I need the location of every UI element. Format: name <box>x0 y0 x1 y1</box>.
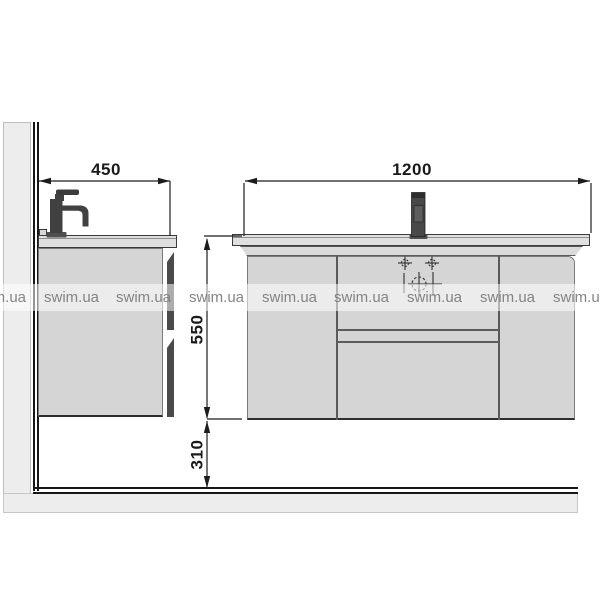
dimension-450-label: 450 <box>80 161 132 178</box>
faucet-front-icon <box>410 193 428 240</box>
countertop-edge-line <box>39 238 176 239</box>
countertop-edge-line <box>233 237 589 238</box>
drawer-gap-line-top <box>338 329 498 331</box>
front-countertop <box>232 234 590 246</box>
door-divider-right <box>498 256 500 420</box>
watermark-text: swim.ua <box>116 289 171 306</box>
front-countertop-apron <box>240 246 583 256</box>
side-countertop <box>38 235 177 248</box>
door-divider-left <box>336 256 338 420</box>
front-cabinet-body <box>247 256 575 420</box>
dimension-450-line <box>39 178 170 236</box>
watermark-text: swim.ua <box>189 289 244 306</box>
watermark-text: swim.ua <box>262 289 317 306</box>
watermark-band: swim.ua swim.ua swim.ua swim.ua swim.ua … <box>0 284 600 311</box>
watermark-text: swim.ua <box>480 289 535 306</box>
faucet-side-icon <box>47 190 89 238</box>
watermark-text: swim.ua <box>407 289 462 306</box>
floor-band <box>3 493 578 513</box>
watermark-text: swim.ua <box>553 289 600 306</box>
side-cabinet-body <box>38 248 163 417</box>
watermark-text: swim.ua <box>44 289 99 306</box>
dimension-1200-line <box>244 178 591 236</box>
drawer-gap-line-bottom <box>338 341 498 343</box>
watermark-text: swim.ua <box>0 289 26 306</box>
floor-line <box>33 487 578 494</box>
wall-band <box>3 122 31 513</box>
side-door-front-lower <box>167 338 174 417</box>
dimension-1200-label: 1200 <box>386 161 438 178</box>
dimension-550-label: 550 <box>189 304 206 356</box>
dimension-310-label: 310 <box>189 429 206 481</box>
dimension-550-line <box>204 236 242 419</box>
watermark-text: swim.ua <box>334 289 389 306</box>
vanity-technical-drawing: 450 1200 550 310 swim.ua swim.ua swim.ua… <box>0 0 600 600</box>
